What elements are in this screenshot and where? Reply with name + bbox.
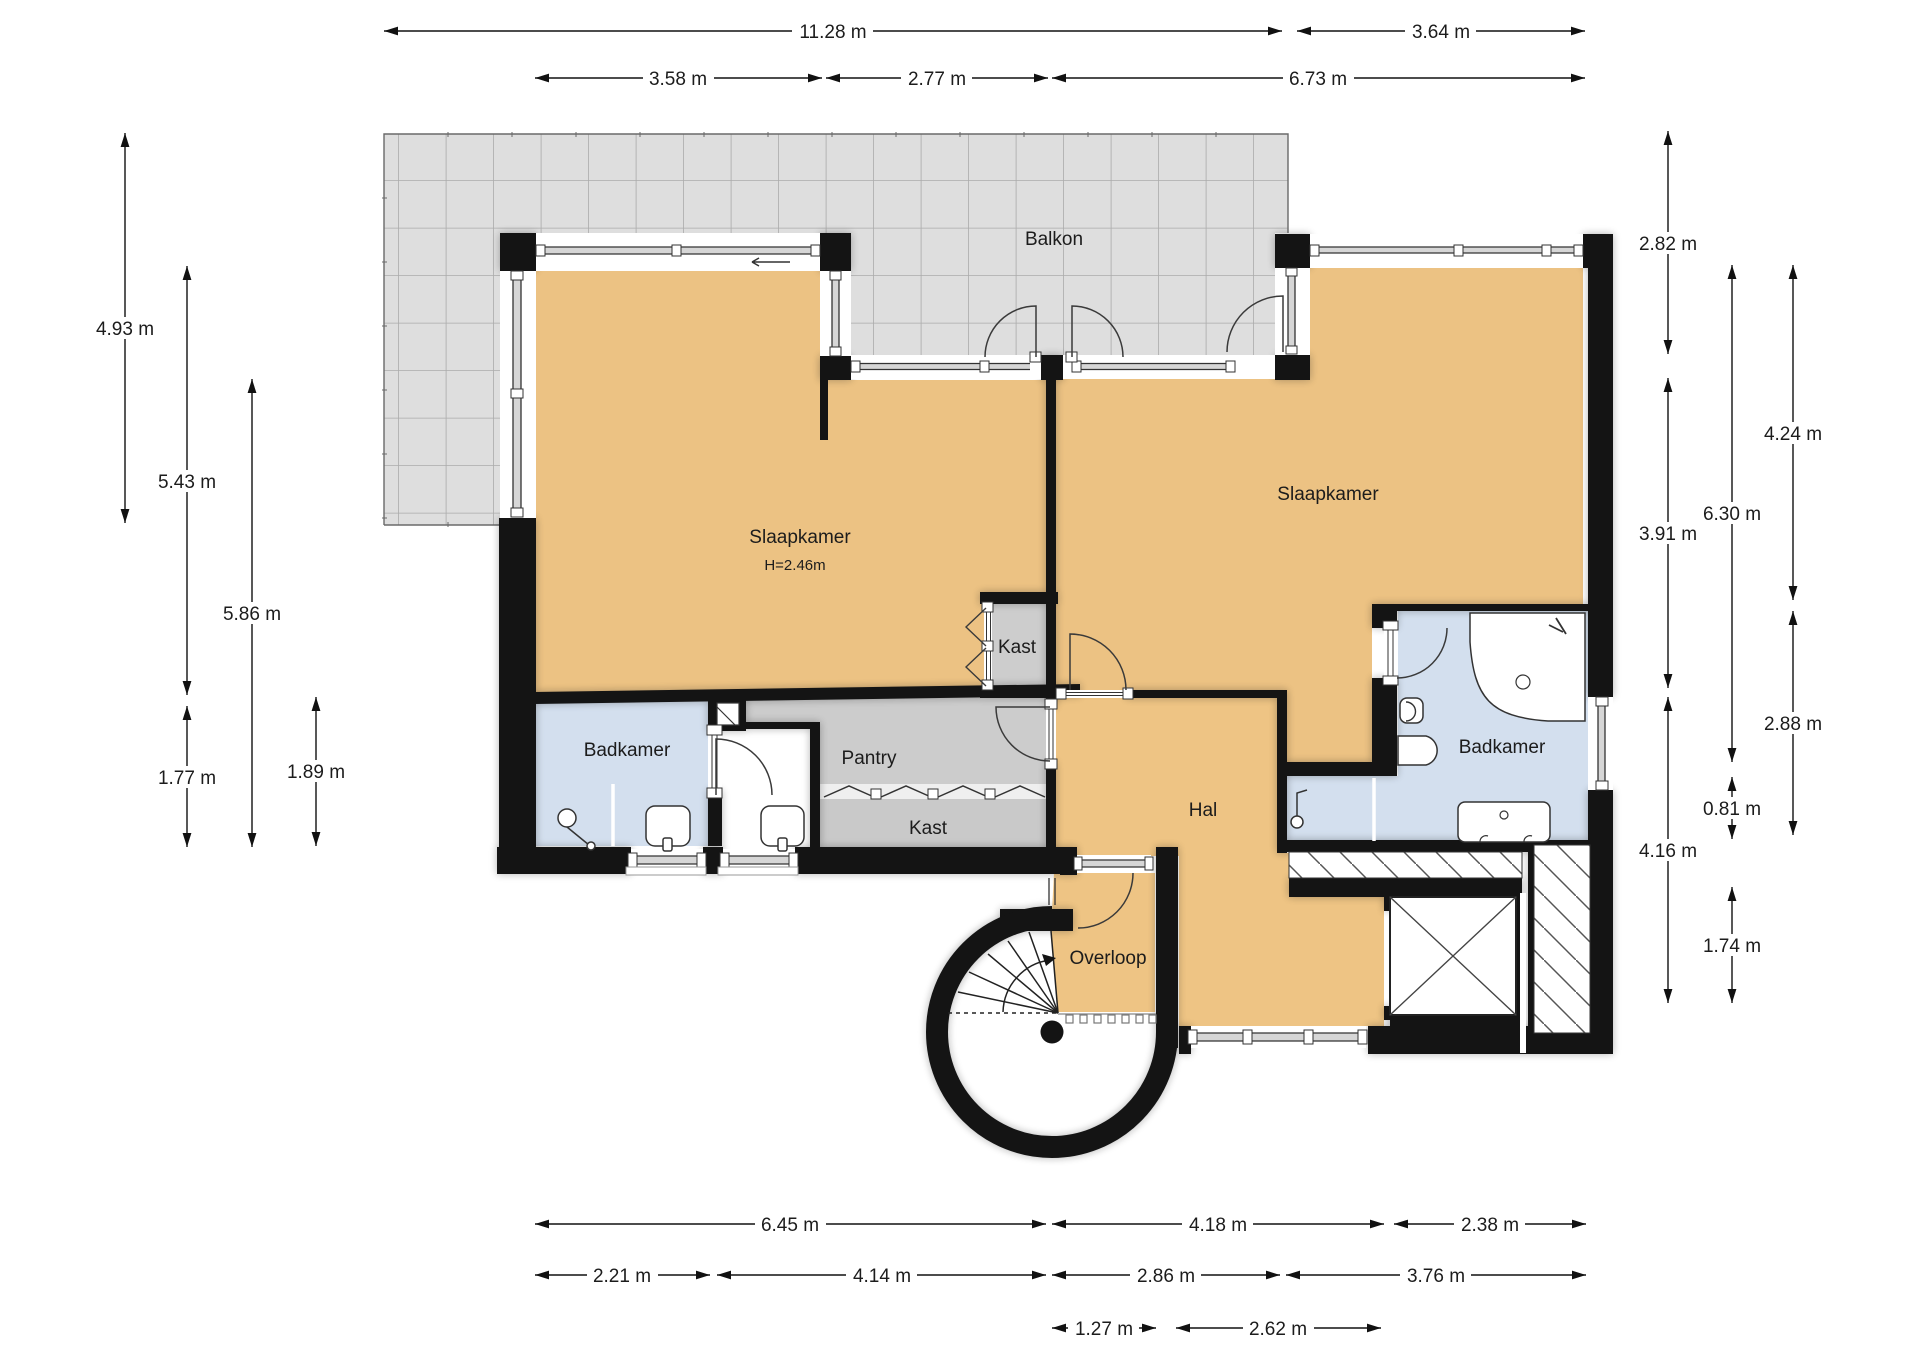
svg-text:Pantry: Pantry	[842, 748, 897, 769]
svg-text:4.93 m: 4.93 m	[96, 319, 154, 340]
svg-text:3.64 m: 3.64 m	[1412, 22, 1470, 43]
svg-text:5.86 m: 5.86 m	[223, 604, 281, 625]
svg-text:4.14 m: 4.14 m	[853, 1266, 911, 1287]
svg-text:2.86 m: 2.86 m	[1137, 1266, 1195, 1287]
svg-text:3.76 m: 3.76 m	[1407, 1266, 1465, 1287]
svg-text:H=2.46m: H=2.46m	[764, 557, 825, 574]
svg-text:6.73 m: 6.73 m	[1289, 69, 1347, 90]
svg-text:1.89 m: 1.89 m	[287, 762, 345, 783]
svg-text:5.43 m: 5.43 m	[158, 472, 216, 493]
svg-text:Badkamer: Badkamer	[584, 740, 671, 761]
svg-text:Badkamer: Badkamer	[1459, 737, 1546, 758]
svg-text:2.62 m: 2.62 m	[1249, 1319, 1307, 1340]
svg-text:1.77 m: 1.77 m	[158, 768, 216, 789]
svg-text:6.30 m: 6.30 m	[1703, 504, 1761, 525]
svg-text:2.21 m: 2.21 m	[593, 1266, 651, 1287]
svg-text:2.82 m: 2.82 m	[1639, 234, 1697, 255]
svg-text:2.88 m: 2.88 m	[1764, 714, 1822, 735]
svg-text:4.16 m: 4.16 m	[1639, 841, 1697, 862]
svg-text:1.74 m: 1.74 m	[1703, 936, 1761, 957]
svg-text:Overloop: Overloop	[1069, 948, 1146, 969]
svg-text:2.77 m: 2.77 m	[908, 69, 966, 90]
svg-text:4.24 m: 4.24 m	[1764, 424, 1822, 445]
svg-text:11.28 m: 11.28 m	[799, 22, 866, 43]
svg-text:Kast: Kast	[998, 637, 1037, 658]
svg-text:3.91 m: 3.91 m	[1639, 524, 1697, 545]
svg-text:3.58 m: 3.58 m	[649, 69, 707, 90]
svg-text:6.45 m: 6.45 m	[761, 1215, 819, 1236]
svg-text:2.38 m: 2.38 m	[1461, 1215, 1519, 1236]
svg-text:Slaapkamer: Slaapkamer	[749, 527, 851, 548]
svg-text:4.18 m: 4.18 m	[1189, 1215, 1247, 1236]
svg-text:Hal: Hal	[1189, 800, 1218, 821]
svg-text:Balkon: Balkon	[1025, 229, 1083, 250]
svg-text:Kast: Kast	[909, 818, 948, 839]
svg-text:Slaapkamer: Slaapkamer	[1277, 484, 1379, 505]
svg-text:1.27 m: 1.27 m	[1075, 1319, 1133, 1340]
svg-text:0.81 m: 0.81 m	[1703, 799, 1761, 820]
